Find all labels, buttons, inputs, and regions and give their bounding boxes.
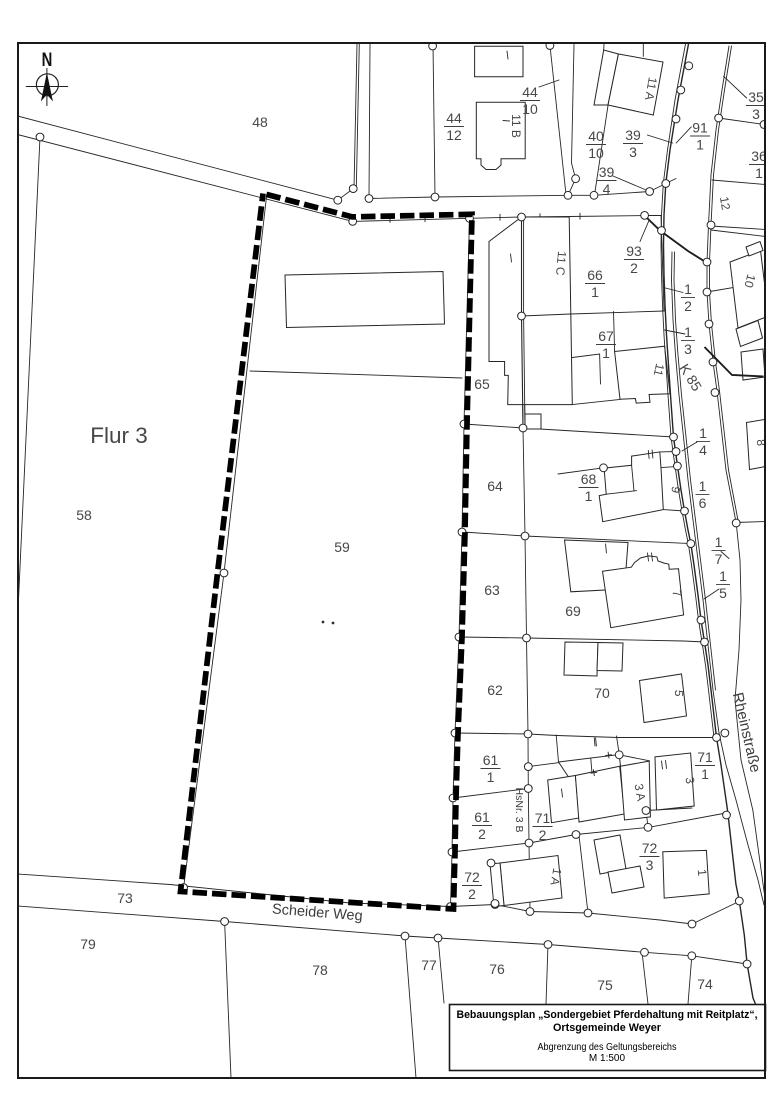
svg-text:44: 44: [522, 84, 538, 100]
svg-text:3: 3: [629, 144, 637, 160]
svg-text:35: 35: [748, 89, 764, 105]
svg-text:10: 10: [522, 101, 538, 117]
svg-text:5: 5: [719, 585, 727, 601]
svg-text:67: 67: [598, 328, 614, 344]
svg-text:58: 58: [76, 507, 92, 523]
svg-text:66: 66: [587, 267, 603, 283]
svg-text:1: 1: [699, 425, 707, 441]
svg-text:61: 61: [483, 752, 499, 768]
svg-text:72: 72: [642, 840, 658, 856]
svg-text:76: 76: [489, 961, 505, 977]
svg-text:3: 3: [646, 857, 654, 873]
svg-text:1: 1: [715, 534, 723, 550]
svg-text:64: 64: [487, 478, 503, 494]
svg-text:1: 1: [602, 345, 610, 361]
svg-text:69: 69: [565, 603, 581, 619]
svg-text:59: 59: [334, 539, 350, 555]
svg-text:3: 3: [752, 106, 760, 122]
svg-text:1: 1: [585, 488, 593, 504]
svg-text:Abgrenzung des Geltungsbereich: Abgrenzung des Geltungsbereichs: [538, 1042, 677, 1053]
svg-text:12: 12: [717, 196, 733, 212]
svg-text:2: 2: [630, 260, 638, 276]
svg-text:48: 48: [252, 114, 268, 130]
svg-text:75: 75: [597, 977, 613, 993]
svg-text:73: 73: [117, 890, 133, 906]
svg-text:40: 40: [588, 128, 604, 144]
svg-text:Ortsgemeinde Weyer: Ortsgemeinde Weyer: [553, 1022, 662, 1034]
svg-text:71: 71: [697, 749, 713, 765]
svg-text:65: 65: [474, 376, 490, 392]
svg-text:M 1:500: M 1:500: [589, 1053, 626, 1064]
svg-text:44: 44: [446, 110, 462, 126]
svg-text:2: 2: [478, 826, 486, 842]
svg-text:39: 39: [625, 127, 641, 143]
svg-text:HsNr. 3 B: HsNr. 3 B: [513, 788, 525, 833]
svg-text:68: 68: [581, 471, 597, 487]
svg-text:11 B: 11 B: [509, 114, 523, 138]
svg-text:93: 93: [626, 243, 642, 259]
svg-text:91: 91: [692, 120, 708, 136]
svg-text:12: 12: [446, 127, 462, 143]
svg-text:2: 2: [468, 886, 476, 902]
svg-text:72: 72: [464, 869, 480, 885]
svg-text:6: 6: [699, 495, 707, 511]
svg-text:10: 10: [588, 145, 604, 161]
svg-text:61: 61: [474, 809, 490, 825]
svg-text:70: 70: [594, 685, 610, 701]
svg-text:63: 63: [484, 582, 500, 598]
svg-text:1: 1: [487, 769, 495, 785]
svg-text:1: 1: [699, 478, 707, 494]
svg-text:Flur 3: Flur 3: [90, 423, 148, 448]
svg-text:1: 1: [701, 766, 709, 782]
svg-text:7: 7: [715, 551, 723, 567]
svg-text:77: 77: [421, 957, 437, 973]
svg-text:39: 39: [599, 164, 615, 180]
svg-text:N: N: [42, 49, 53, 70]
svg-text:2: 2: [684, 298, 692, 314]
svg-text:1: 1: [719, 568, 727, 584]
svg-text:78: 78: [312, 962, 328, 978]
svg-text:71: 71: [535, 810, 551, 826]
svg-text:74: 74: [697, 976, 713, 992]
svg-text:1: 1: [755, 165, 763, 181]
svg-text:3: 3: [684, 341, 692, 357]
svg-text:2: 2: [539, 827, 547, 843]
svg-text:Bebauungsplan „Sondergebiet Pf: Bebauungsplan „Sondergebiet Pferdehaltun…: [457, 1009, 758, 1021]
svg-text:11 C: 11 C: [553, 251, 569, 277]
svg-text:1 A: 1 A: [548, 867, 565, 887]
svg-text:1: 1: [684, 281, 692, 297]
svg-text:1: 1: [591, 284, 599, 300]
svg-text:4: 4: [699, 442, 707, 458]
svg-text:4: 4: [603, 181, 611, 197]
svg-text:79: 79: [80, 936, 96, 952]
svg-text:3 A: 3 A: [632, 783, 649, 803]
svg-text:1: 1: [684, 324, 692, 340]
svg-text:62: 62: [487, 682, 503, 698]
svg-text:1: 1: [696, 137, 704, 153]
